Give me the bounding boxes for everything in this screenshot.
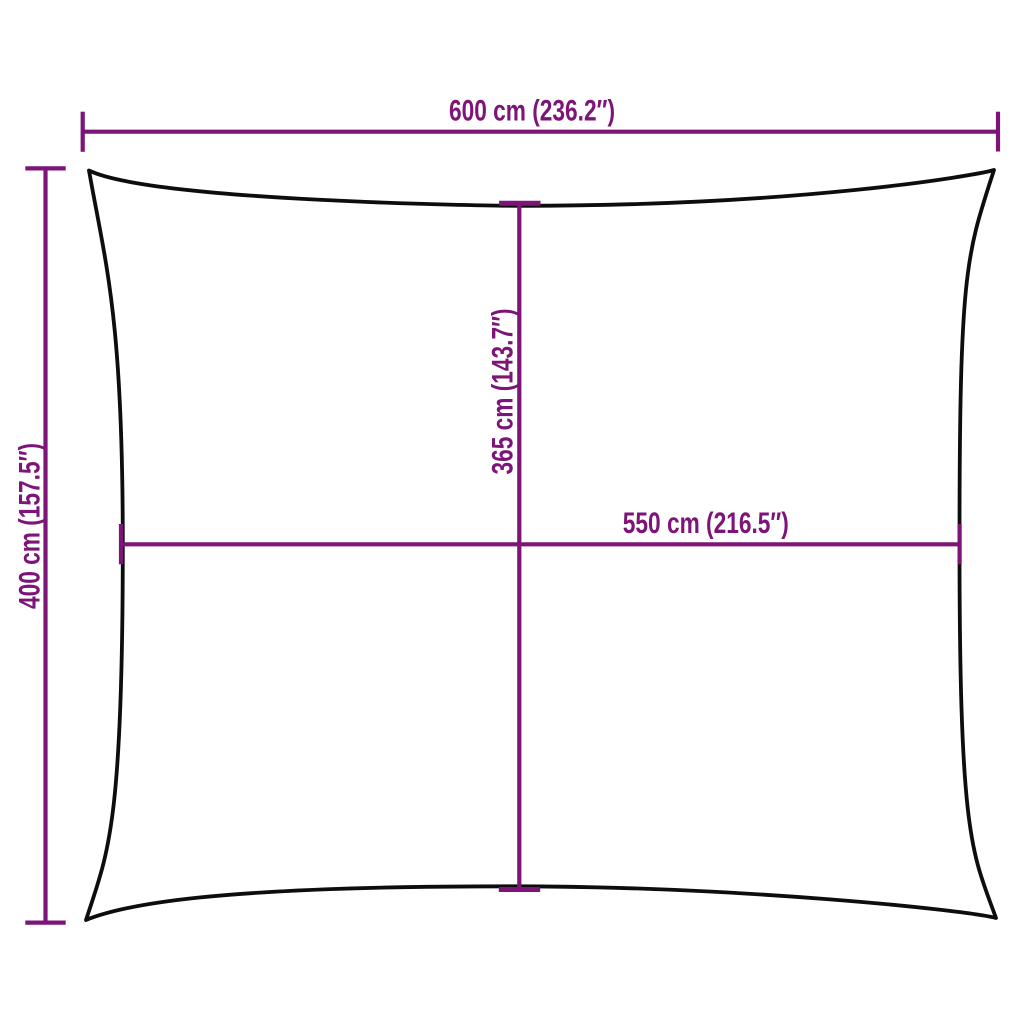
svg-text:365 cm (143.7″): 365 cm (143.7″) xyxy=(486,309,519,475)
svg-text:600 cm (236.2″): 600 cm (236.2″) xyxy=(449,95,615,128)
svg-text:400 cm (157.5″): 400 cm (157.5″) xyxy=(13,443,46,609)
svg-text:550 cm (216.5″): 550 cm (216.5″) xyxy=(623,507,789,540)
